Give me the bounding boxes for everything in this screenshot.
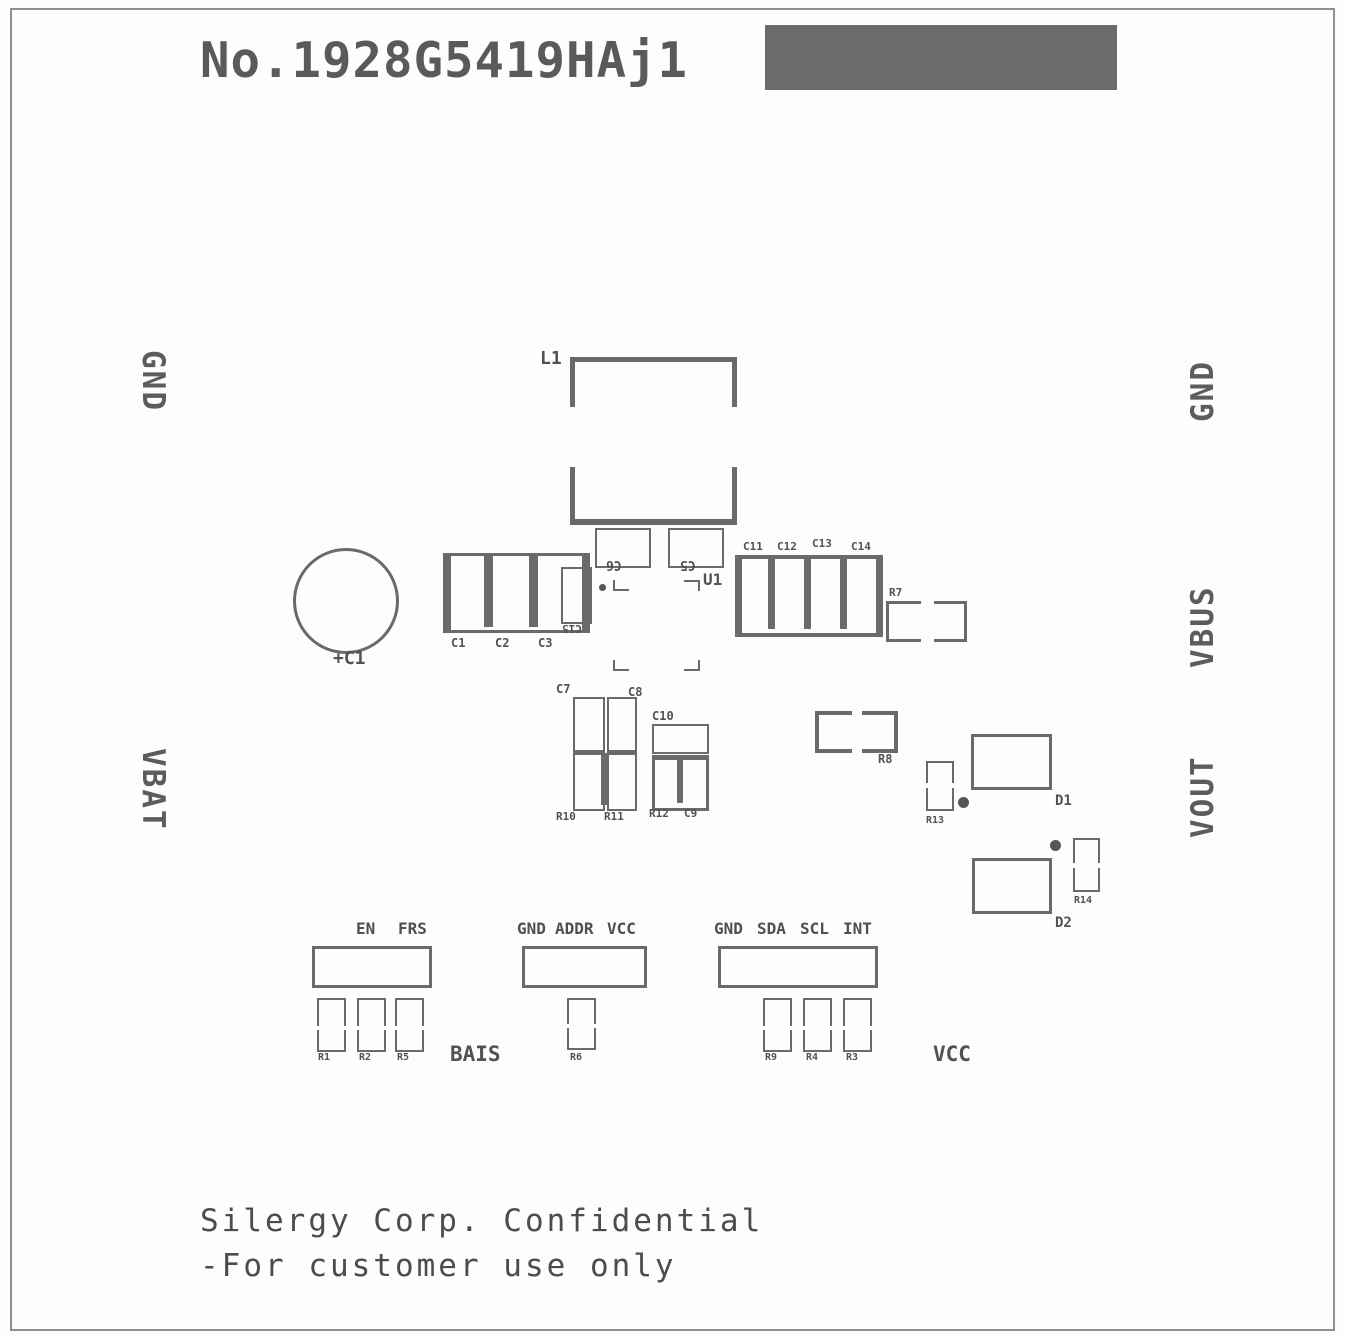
header-left-outline — [312, 946, 432, 988]
c1-electrolytic-label: +C1 — [333, 650, 366, 668]
header-middle-outline — [522, 946, 647, 988]
c5-label: C5 — [680, 558, 696, 571]
r8-pad-left — [815, 711, 852, 753]
cap-block-left-bar-1 — [484, 556, 493, 627]
pin-label-gnd-mid: GND — [517, 921, 546, 937]
vcc-annotation: VCC — [933, 1044, 971, 1065]
edge-label-gnd-right: GND — [1188, 360, 1219, 422]
c6-label: C6 — [606, 558, 622, 571]
pin-label-sda: SDA — [757, 921, 786, 937]
r1-pad-top — [317, 998, 346, 1026]
board-number-title: No.1928G5419HAj1 — [200, 36, 688, 85]
r4-pad-bottom — [803, 1030, 832, 1052]
r3-pad-top — [843, 998, 872, 1026]
l1-outline-bottom — [570, 467, 737, 525]
pcb-silkscreen-drawing: No.1928G5419HAj1 GND VBAT GND VBUS VOUT … — [0, 0, 1345, 1339]
center-shared-pad-bar — [601, 753, 607, 805]
r7-pad-left — [886, 601, 921, 642]
cap-right-label-1: C11 — [743, 541, 763, 552]
c6-outline — [595, 528, 651, 568]
d2-label: D2 — [1055, 916, 1072, 930]
cap-right-label-3: C13 — [812, 538, 832, 549]
c15-label: C15 — [562, 623, 582, 634]
cap-left-label-3: C3 — [538, 637, 552, 649]
bias-annotation: BAIS — [450, 1044, 501, 1065]
r1-label: R1 — [318, 1053, 330, 1063]
u1-corner-tl — [613, 580, 629, 591]
r13-pad-top — [926, 761, 954, 783]
r9-label: R9 — [765, 1053, 777, 1063]
r8-label: R8 — [878, 753, 892, 765]
u1-corner-br — [684, 660, 700, 671]
cap-right-label-4: C14 — [851, 541, 871, 552]
board-outline — [10, 8, 1335, 1331]
r6-pad-top — [567, 998, 596, 1024]
d1-label: D1 — [1055, 794, 1072, 808]
via-dot-2 — [1050, 840, 1061, 851]
c10-label: C10 — [652, 710, 674, 722]
d2-outline — [972, 858, 1052, 914]
c8-r11-pad-bar — [609, 750, 635, 755]
edge-label-vout: VOUT — [1188, 755, 1219, 838]
r9-pad-bottom — [763, 1030, 792, 1052]
r3-pad-bottom — [843, 1030, 872, 1052]
r6-label: R6 — [570, 1053, 582, 1063]
pin-label-en: EN — [356, 921, 375, 937]
r13-label: R13 — [926, 816, 944, 826]
r7-label: R7 — [889, 587, 902, 598]
c9-label: C9 — [684, 808, 697, 819]
u1-corner-bl — [613, 660, 629, 671]
c10-outline — [652, 724, 709, 754]
edge-label-vbus: VBUS — [1188, 585, 1219, 668]
r14-label: R14 — [1074, 896, 1092, 906]
c7-label: C7 — [556, 683, 570, 695]
r3-label: R3 — [846, 1053, 858, 1063]
footer-confidential-line2: -For customer use only — [200, 1251, 677, 1282]
edge-label-gnd-left: GND — [137, 350, 168, 412]
cap-left-label-2: C2 — [495, 637, 509, 649]
r2-pad-bottom — [357, 1030, 386, 1052]
r11-label: R11 — [604, 811, 624, 822]
c7-r10-pad-bar — [575, 750, 603, 755]
r4-pad-top — [803, 998, 832, 1026]
cap-block-left-bar-2 — [529, 556, 538, 627]
pin-label-gnd-right: GND — [714, 921, 743, 937]
r8-pad-right — [862, 711, 898, 753]
r5-pad-top — [395, 998, 424, 1026]
r2-label: R2 — [359, 1053, 371, 1063]
cap-block-right-bar-3 — [840, 559, 847, 629]
r1-pad-bottom — [317, 1030, 346, 1052]
edge-label-vbat: VBAT — [137, 748, 168, 831]
r5-label: R5 — [397, 1053, 409, 1063]
pin-label-vcc-mid: VCC — [607, 921, 636, 937]
r9-pad-top — [763, 998, 792, 1026]
c5-outline — [668, 528, 724, 568]
r5-pad-bottom — [395, 1030, 424, 1052]
cap-block-right-bar-2 — [804, 559, 811, 629]
r12-label: R12 — [649, 808, 669, 819]
c15-outline — [561, 567, 592, 624]
pin-label-int: INT — [843, 921, 872, 937]
masked-label-block — [765, 25, 1117, 90]
l1-label: L1 — [540, 350, 562, 368]
r4-label: R4 — [806, 1053, 818, 1063]
pin-label-frs: FRS — [398, 921, 427, 937]
r12-c9-separator-bar — [677, 758, 683, 803]
u1-pin1-dot — [599, 584, 606, 591]
cap-left-label-1: C1 — [451, 637, 465, 649]
footer-confidential-line1: Silergy Corp. Confidential — [200, 1206, 763, 1237]
cap-right-label-2: C12 — [777, 541, 797, 552]
r14-pad-top — [1073, 838, 1100, 863]
r13-pad-bottom — [926, 788, 954, 811]
r10-label: R10 — [556, 811, 576, 822]
r14-pad-bottom — [1073, 868, 1100, 892]
u1-label: U1 — [703, 572, 722, 588]
r6-pad-bottom — [567, 1028, 596, 1050]
pin-label-addr: ADDR — [555, 921, 594, 937]
c1-electrolytic-outline — [293, 548, 399, 654]
u1-corner-tr — [684, 580, 700, 591]
r7-pad-right — [934, 601, 967, 642]
pin-label-scl: SCL — [800, 921, 829, 937]
l1-outline-top — [570, 357, 737, 407]
r2-pad-top — [357, 998, 386, 1026]
header-right-outline — [718, 946, 878, 988]
d1-outline — [971, 734, 1052, 790]
cap-block-right-bar-1 — [768, 559, 775, 629]
via-dot-1 — [958, 797, 969, 808]
